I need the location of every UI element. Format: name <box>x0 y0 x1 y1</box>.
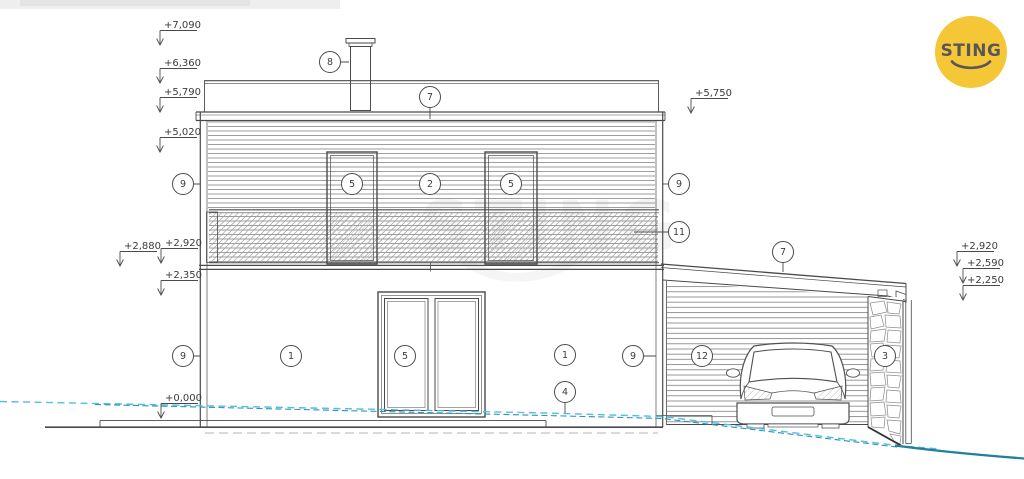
callout-number: 9 <box>630 351 636 362</box>
callout-3-16: 3 <box>875 346 896 367</box>
callout-5-8: 5 <box>501 174 522 195</box>
entrance-door <box>378 292 485 417</box>
callout-number: 12 <box>696 351 708 362</box>
callout-number: 1 <box>288 351 294 362</box>
callout-7-2: 7 <box>773 242 794 273</box>
callout-5-9: 5 <box>395 346 416 367</box>
sting-logo: STING <box>935 16 1007 88</box>
mirror-left <box>727 369 740 377</box>
elevation-mark-2: +5,790 <box>157 87 201 112</box>
callout-number: 3 <box>882 351 888 362</box>
callout-1-11: 1 <box>555 345 576 366</box>
elevation-drawing: STING <box>0 0 1024 479</box>
terrain-solid-line <box>895 446 1024 459</box>
roof-slab <box>196 112 665 122</box>
elevation-mark-0: +7,090 <box>157 20 201 45</box>
chimney <box>346 39 375 111</box>
callout-number: 5 <box>349 179 355 190</box>
elevation-label: +2,920 <box>165 238 202 249</box>
elevation-label: +0,000 <box>165 393 202 404</box>
wheel-right <box>822 424 839 428</box>
elevation-label: +2,350 <box>165 270 202 281</box>
elevation-label: +2,920 <box>961 241 998 252</box>
elevation-mark-4: +2,880 <box>117 241 161 266</box>
blueprint-canvas: STING <box>0 0 1024 479</box>
callout-number: 5 <box>508 179 514 190</box>
elevation-label: +6,360 <box>164 58 201 69</box>
callout-number: 11 <box>673 227 685 238</box>
callout-number: 9 <box>180 179 186 190</box>
bumper <box>737 403 849 424</box>
elevation-label: +5,750 <box>695 88 732 99</box>
elevation-label: +2,590 <box>967 258 1004 269</box>
elevation-mark-5: +2,920 <box>158 238 202 263</box>
car <box>727 343 860 428</box>
callout-5-7: 5 <box>342 174 363 195</box>
elevation-label: +2,880 <box>124 241 161 252</box>
callout-number: 2 <box>427 179 433 190</box>
callout-9-3: 9 <box>173 174 201 195</box>
elevation-label: +5,020 <box>164 127 201 138</box>
logo-text: STING <box>941 41 1002 61</box>
callout-number: 9 <box>180 351 186 362</box>
elevation-mark-8: +5,750 <box>688 88 732 113</box>
balcony-railing <box>207 210 660 263</box>
elevation-label: +2,250 <box>967 275 1004 286</box>
callout-9-13: 9 <box>623 346 657 367</box>
downspout <box>906 300 912 444</box>
stone-pier <box>868 297 903 446</box>
callout-number: 1 <box>562 350 568 361</box>
upper-facade-siding <box>208 121 655 210</box>
elevation-mark-1: +6,360 <box>157 58 201 83</box>
mirror-right <box>847 369 860 377</box>
callout-9-12: 9 <box>173 346 201 367</box>
callout-12-15: 12 <box>692 346 713 367</box>
elevation-mark-11: +2,250 <box>960 275 1004 300</box>
top-edge-artifact <box>0 0 340 9</box>
elevation-mark-6: +2,350 <box>158 270 202 295</box>
callout-number: 7 <box>780 247 786 258</box>
elevation-label: +5,790 <box>164 87 201 98</box>
callout-number: 8 <box>327 57 333 68</box>
elevation-label: +7,090 <box>164 20 201 31</box>
callout-4-14: 4 <box>555 382 576 414</box>
elevation-mark-3: +5,020 <box>157 127 201 152</box>
callout-number: 9 <box>676 179 682 190</box>
callout-number: 4 <box>562 387 568 398</box>
callout-2-6: 2 <box>420 174 441 195</box>
callout-1-10: 1 <box>281 346 302 367</box>
callout-number: 7 <box>427 92 433 103</box>
callout-number: 5 <box>402 351 408 362</box>
ground-line <box>45 421 663 433</box>
callout-8-0: 8 <box>320 52 350 73</box>
